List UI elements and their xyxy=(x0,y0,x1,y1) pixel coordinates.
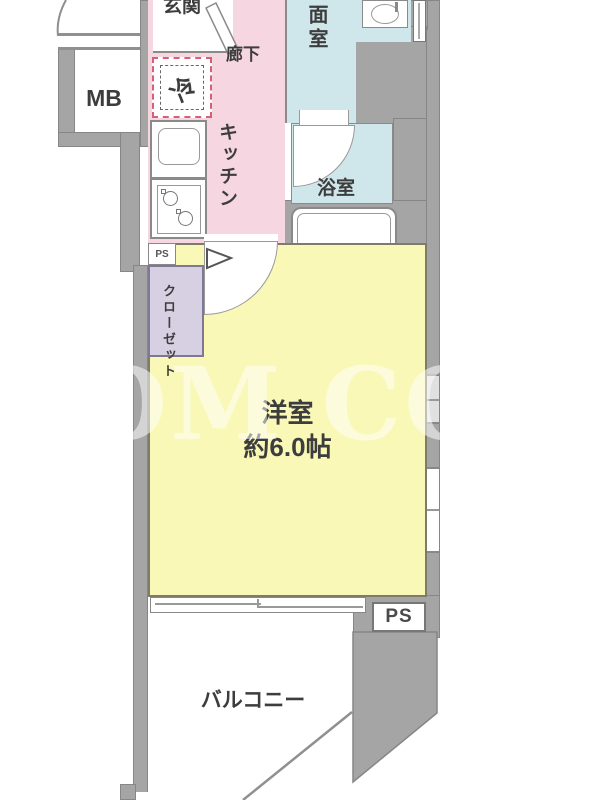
balcony-label: バルコニー xyxy=(168,684,338,714)
watermark-text: OM CO xyxy=(80,345,494,463)
hallway-label: 廊下 xyxy=(226,40,260,65)
kitchen-counter-stove xyxy=(150,178,207,239)
wall-bathroom-right xyxy=(393,118,427,210)
stove-burner-tab xyxy=(161,189,166,194)
balcony-sliding-door xyxy=(150,597,366,613)
window-right-lower xyxy=(427,467,439,553)
washroom-label: 洗面室 xyxy=(302,0,331,52)
window-top-right xyxy=(413,0,426,42)
porch-line-top xyxy=(58,33,140,36)
entrance-door-arc xyxy=(58,0,66,36)
window-pane-line xyxy=(427,509,439,511)
meter-box-label: MB xyxy=(78,85,130,112)
wall-balcony-foot xyxy=(120,784,136,800)
pipe-space-bottom: PS xyxy=(372,602,426,632)
sliding-panel-line xyxy=(257,606,363,608)
balcony-wall-notch xyxy=(136,792,148,800)
washroom-sink xyxy=(362,0,408,28)
stove-burner-tab xyxy=(176,209,181,214)
refrigerator-label: 冷 xyxy=(161,67,203,109)
sliding-panel-line xyxy=(155,603,261,605)
closet-label: クローゼット xyxy=(160,284,194,338)
balcony-diagonal-line xyxy=(243,712,352,800)
kitchen-counter-sink xyxy=(150,120,207,179)
window-pane-line xyxy=(418,3,420,39)
balcony-right-wall xyxy=(353,632,437,782)
pipe-space-top: PS xyxy=(148,243,176,265)
bathroom-door-opening xyxy=(299,110,349,126)
bathroom-label: 浴室 xyxy=(317,173,355,200)
kitchen-label: キッチン xyxy=(213,122,240,210)
refrigerator-inner: 冷 xyxy=(160,65,204,110)
sink-faucet-icon xyxy=(395,2,398,12)
pipe-space-top-label: PS xyxy=(155,249,168,260)
sliding-door-tick xyxy=(257,599,259,608)
wall-left-mid xyxy=(120,132,140,272)
kitchen-sink-icon xyxy=(158,128,200,165)
pipe-space-bottom-label: PS xyxy=(385,606,412,628)
entrance-label: 玄関 xyxy=(150,0,214,18)
porch-line-bottom xyxy=(58,47,140,50)
refrigerator-space: 冷 xyxy=(152,57,212,118)
floorplan: 冷 PS PS xyxy=(0,0,600,800)
